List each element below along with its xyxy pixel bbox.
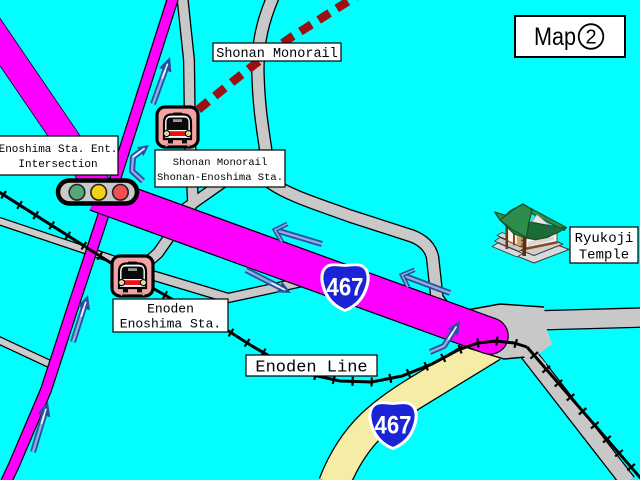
svg-text:Enoden: Enoden	[147, 302, 194, 317]
svg-text:Shonan Monorail: Shonan Monorail	[173, 157, 268, 169]
svg-text:Shonan Monorail: Shonan Monorail	[216, 47, 338, 62]
svg-text:Enoden Line: Enoden Line	[255, 359, 367, 378]
svg-text:Temple: Temple	[579, 247, 629, 263]
svg-text:Enoshima Sta. Ent.: Enoshima Sta. Ent.	[0, 144, 117, 156]
svg-text:467: 467	[375, 412, 412, 440]
svg-text:Shonan-Enoshima Sta.: Shonan-Enoshima Sta.	[157, 172, 283, 184]
svg-text:2: 2	[585, 27, 596, 49]
svg-text:Ryukoji: Ryukoji	[575, 231, 634, 247]
svg-text:Enoshima Sta.: Enoshima Sta.	[120, 317, 221, 332]
svg-text:467: 467	[327, 274, 364, 302]
svg-text:Intersection: Intersection	[18, 159, 97, 171]
svg-text:Map: Map	[534, 23, 576, 51]
